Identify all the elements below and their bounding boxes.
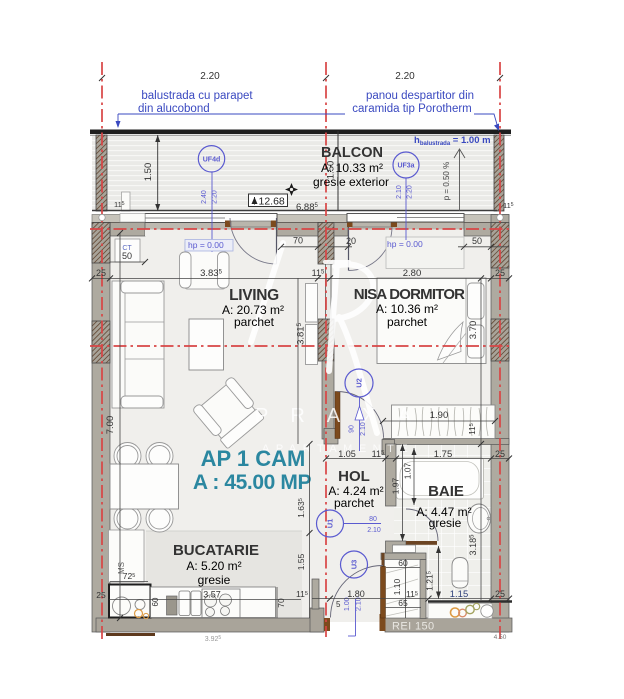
svg-text:A: 10.36 m²: A: 10.36 m²: [376, 302, 438, 316]
svg-text:U3: U3: [350, 560, 359, 570]
svg-text:2.80: 2.80: [403, 268, 422, 279]
svg-text:1.10: 1.10: [392, 578, 402, 595]
svg-text:REI 150: REI 150: [392, 621, 435, 633]
svg-text:25: 25: [495, 268, 505, 278]
svg-text:2.40: 2.40: [201, 190, 208, 204]
svg-text:25: 25: [495, 589, 505, 599]
svg-text:1.50: 1.50: [143, 163, 154, 182]
svg-text:hp = 0.00: hp = 0.00: [188, 240, 224, 250]
svg-text:25: 25: [495, 449, 505, 459]
svg-text:1.07: 1.07: [403, 462, 413, 479]
svg-text:1.05: 1.05: [338, 449, 356, 459]
svg-text:50: 50: [472, 236, 482, 246]
svg-text:7.00: 7.00: [105, 416, 116, 435]
svg-text:70: 70: [276, 598, 286, 608]
svg-text:5: 5: [336, 600, 341, 609]
svg-text:U2: U2: [355, 378, 364, 388]
svg-text:3.70: 3.70: [468, 321, 479, 340]
svg-text:NISA DORMITOR: NISA DORMITOR: [354, 286, 465, 303]
svg-text:BUCATARIE: BUCATARIE: [173, 542, 259, 559]
svg-text:PRAXA: PRAXA: [255, 405, 433, 427]
svg-text:1.97: 1.97: [391, 477, 401, 494]
svg-text:p = 0.50 %: p = 0.50 %: [442, 162, 451, 200]
svg-text:balustrada cu parapet: balustrada cu parapet: [141, 90, 253, 102]
svg-text:UF4d: UF4d: [203, 157, 221, 164]
svg-text:A : 45.00 MP: A : 45.00 MP: [193, 471, 312, 494]
svg-text:1.75: 1.75: [434, 449, 453, 460]
svg-text:2.10: 2.10: [360, 422, 367, 436]
svg-text:2.20: 2.20: [200, 71, 220, 82]
svg-text:HOL: HOL: [338, 468, 370, 485]
svg-text:gresie: gresie: [429, 516, 462, 530]
svg-text:60: 60: [398, 558, 408, 568]
svg-text:parchet: parchet: [334, 496, 375, 510]
svg-text:1.90: 1.90: [430, 410, 449, 421]
svg-text:2.20: 2.20: [407, 185, 414, 199]
svg-text:parchet: parchet: [387, 315, 428, 329]
svg-text:2.10: 2.10: [356, 597, 363, 611]
svg-text:BAIE: BAIE: [428, 483, 464, 500]
svg-text:LIVING: LIVING: [229, 287, 279, 304]
svg-text:12.68: 12.68: [259, 196, 285, 208]
svg-text:25: 25: [96, 268, 106, 278]
svg-text:caramida tip Porotherm: caramida tip Porotherm: [352, 103, 472, 115]
svg-text:60: 60: [151, 597, 160, 606]
svg-text:panou despartitor din: panou despartitor din: [366, 90, 474, 102]
svg-text:70: 70: [293, 236, 303, 246]
svg-text:BALCON: BALCON: [321, 145, 383, 161]
svg-text:2.10: 2.10: [396, 185, 403, 199]
svg-text:A: 5.20 m²: A: 5.20 m²: [186, 559, 241, 573]
svg-text:U1: U1: [326, 519, 335, 529]
svg-text:din alucobond: din alucobond: [138, 103, 210, 115]
svg-text:1.80: 1.80: [347, 589, 365, 599]
svg-text:90: 90: [349, 425, 356, 433]
svg-text:3.57: 3.57: [203, 590, 221, 600]
svg-text:80: 80: [369, 516, 377, 523]
svg-text:50: 50: [122, 251, 132, 261]
svg-text:AP 1 CAM: AP 1 CAM: [201, 446, 306, 471]
svg-text:25: 25: [96, 590, 106, 600]
svg-text:65: 65: [398, 598, 408, 608]
svg-text:1.50: 1.50: [326, 161, 337, 180]
svg-text:2.20: 2.20: [212, 190, 219, 204]
svg-text:1.15: 1.15: [450, 589, 469, 600]
svg-text:UF3a: UF3a: [397, 163, 414, 170]
svg-text:2.20: 2.20: [395, 71, 415, 82]
svg-text:parchet: parchet: [234, 315, 275, 329]
svg-text:2.10: 2.10: [367, 527, 381, 534]
svg-text:hp = 0.00: hp = 0.00: [387, 239, 423, 249]
svg-text:20: 20: [346, 236, 356, 246]
svg-text:1.00: 1.00: [344, 597, 351, 611]
svg-text:1.55: 1.55: [296, 553, 306, 570]
svg-text:gresie exterior: gresie exterior: [313, 175, 389, 189]
svg-text:gresie: gresie: [198, 573, 231, 587]
svg-text:4.50: 4.50: [494, 634, 507, 641]
